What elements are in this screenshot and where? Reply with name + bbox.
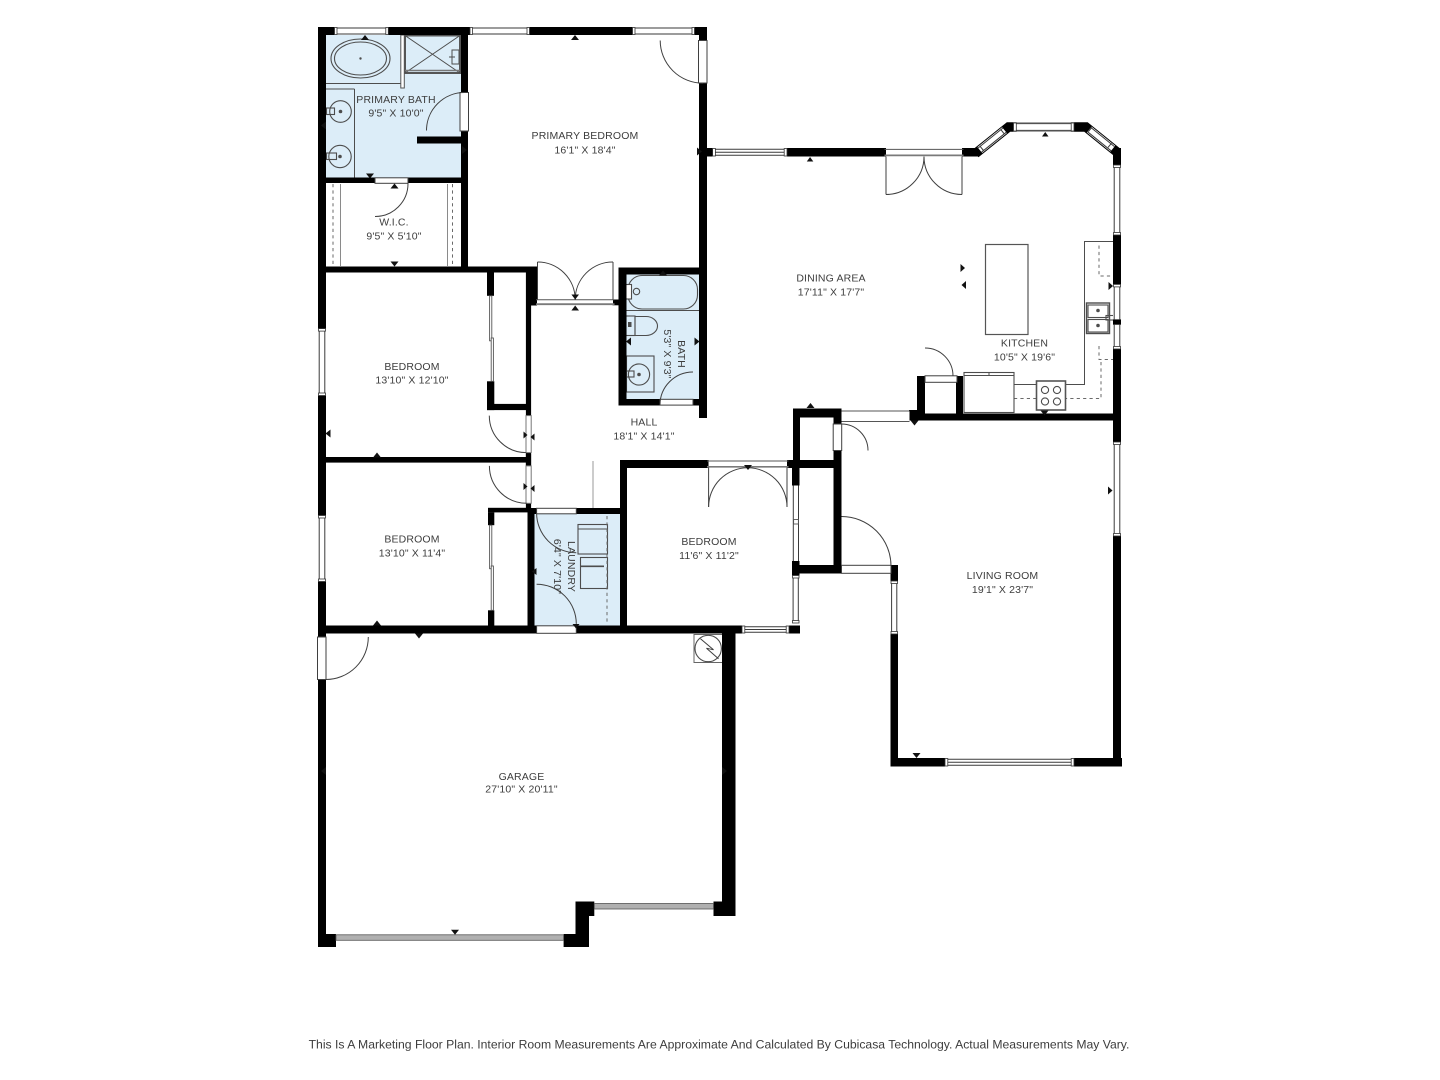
svg-text:BATH: BATH bbox=[675, 340, 687, 368]
svg-text:GARAGE: GARAGE bbox=[499, 771, 545, 783]
svg-text:BEDROOM: BEDROOM bbox=[384, 361, 439, 373]
svg-text:HALL: HALL bbox=[631, 417, 658, 429]
svg-text:27'10" X 20'11": 27'10" X 20'11" bbox=[485, 784, 558, 796]
svg-text:9'5" X 10'0": 9'5" X 10'0" bbox=[368, 107, 423, 119]
svg-text:13'10" X 12'10": 13'10" X 12'10" bbox=[375, 374, 448, 386]
svg-text:16'1" X 18'4": 16'1" X 18'4" bbox=[554, 144, 615, 156]
svg-text:13'10" X 11'4": 13'10" X 11'4" bbox=[379, 548, 446, 560]
svg-text:9'5" X 5'10": 9'5" X 5'10" bbox=[366, 231, 421, 243]
svg-text:BEDROOM: BEDROOM bbox=[384, 534, 439, 546]
svg-text:11'6" X 11'2": 11'6" X 11'2" bbox=[679, 550, 739, 562]
svg-text:18'1" X 14'1": 18'1" X 14'1" bbox=[613, 431, 674, 443]
svg-text:5'3" X 9'3": 5'3" X 9'3" bbox=[661, 329, 673, 378]
svg-text:BEDROOM: BEDROOM bbox=[681, 536, 736, 548]
svg-text:KITCHEN: KITCHEN bbox=[1001, 338, 1048, 350]
svg-text:DINING AREA: DINING AREA bbox=[796, 273, 865, 285]
svg-text:PRIMARY BEDROOM: PRIMARY BEDROOM bbox=[532, 130, 639, 142]
svg-text:W.I.C.: W.I.C. bbox=[379, 217, 408, 229]
svg-text:This Is A Marketing Floor Plan: This Is A Marketing Floor Plan. Interior… bbox=[309, 1038, 1130, 1052]
svg-text:6'4" X 7'10": 6'4" X 7'10" bbox=[551, 539, 563, 594]
svg-text:LAUNDRY: LAUNDRY bbox=[565, 541, 577, 592]
svg-text:19'1" X 23'7": 19'1" X 23'7" bbox=[972, 584, 1033, 596]
svg-text:PRIMARY BATH: PRIMARY BATH bbox=[356, 94, 435, 106]
svg-text:10'5" X 19'6": 10'5" X 19'6" bbox=[994, 352, 1055, 364]
svg-text:17'11" X 17'7": 17'11" X 17'7" bbox=[798, 287, 865, 299]
svg-text:LIVING ROOM: LIVING ROOM bbox=[967, 570, 1039, 582]
